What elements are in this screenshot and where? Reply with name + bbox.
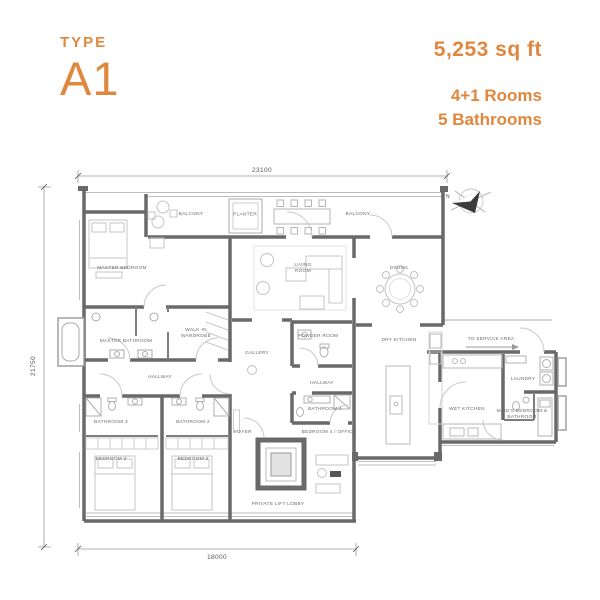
room-label-master-bedroom: MASTER BEDROOM: [97, 265, 147, 271]
compass-n-label: N: [446, 194, 450, 200]
bedroom4-desk: [316, 455, 348, 493]
room-label-bathroom-4: BATHROOM 4: [308, 406, 342, 412]
room-label-hallway-1: HALLWAY: [148, 374, 172, 380]
walls-thin: [84, 307, 534, 436]
north-compass-icon: N: [446, 189, 491, 213]
room-label-powder-room: POWDER ROOM: [298, 333, 339, 339]
room-label-walk-in-wardrobe: WALK-INWARDROBE: [181, 327, 211, 339]
room-label-balcony-left: BALCONY: [179, 211, 204, 217]
dimension-bottom: 18000: [207, 554, 227, 561]
room-label-balcony-right: BALCONY: [346, 211, 371, 217]
wall-piers: [78, 186, 448, 461]
room-label-bathroom-2: BATHROOM 2: [176, 419, 210, 425]
room-label-bedroom-4-office: BEDROOM 4 / OFFICE: [302, 429, 357, 435]
room-label-bedroom-2: BEDROOM 2: [177, 456, 208, 462]
dimension-lines: [38, 170, 450, 556]
bedroom-closets: [86, 438, 228, 449]
gallery-pedestal: [248, 366, 257, 375]
wet-kitchen-fixtures: [443, 355, 502, 439]
room-label-planter: PLANTER: [233, 212, 257, 218]
service-arrow: [466, 344, 519, 350]
room-label-bathroom-3: BATHROOM 3: [94, 419, 128, 425]
bathroom3-fixtures: [86, 398, 142, 416]
foyer-console: [234, 410, 240, 432]
lounge-chairs: [148, 201, 177, 228]
lift-shaft: [258, 440, 304, 488]
room-label-hallway-2: HALLWAY: [310, 380, 334, 386]
dimension-top: 23100: [252, 167, 272, 174]
room-label-gallery: GALLERY: [245, 350, 269, 356]
bathroom2-fixtures: [172, 398, 229, 416]
bedroom3-bed: [95, 456, 135, 510]
room-label-to-service-area: TO SERVICE AREA: [468, 336, 515, 342]
dimension-left: 21750: [30, 356, 37, 376]
room-label-foyer: FOYER: [234, 429, 252, 435]
room-label-master-bathroom: MASTER BATHROOM: [100, 338, 152, 344]
furniture: [62, 199, 553, 510]
floorplan-page: TYPE A1 5,253 sq ft 4+1 Rooms 5 Bathroom…: [0, 0, 600, 600]
dining-set: [377, 266, 424, 313]
room-label-dining: DINING: [390, 265, 408, 271]
room-label-dry-kitchen: DRY KITCHEN: [381, 337, 416, 343]
dry-kitchen-fixtures: [386, 332, 442, 444]
room-label-wet-kitchen: WET KITCHEN: [449, 406, 485, 412]
room-label-private-lift-lobby: PRIVATE LIFT LOBBY: [252, 501, 305, 507]
bedroom2-bed: [172, 456, 212, 510]
floor-plan: 23100 21750 18000: [0, 0, 600, 600]
room-label-laundry: LAUNDRY: [511, 376, 536, 382]
room-label-bedroom-3: BEDROOM 3: [95, 456, 126, 462]
living-furniture: [254, 246, 346, 310]
wardrobe-hatch: [206, 312, 228, 350]
